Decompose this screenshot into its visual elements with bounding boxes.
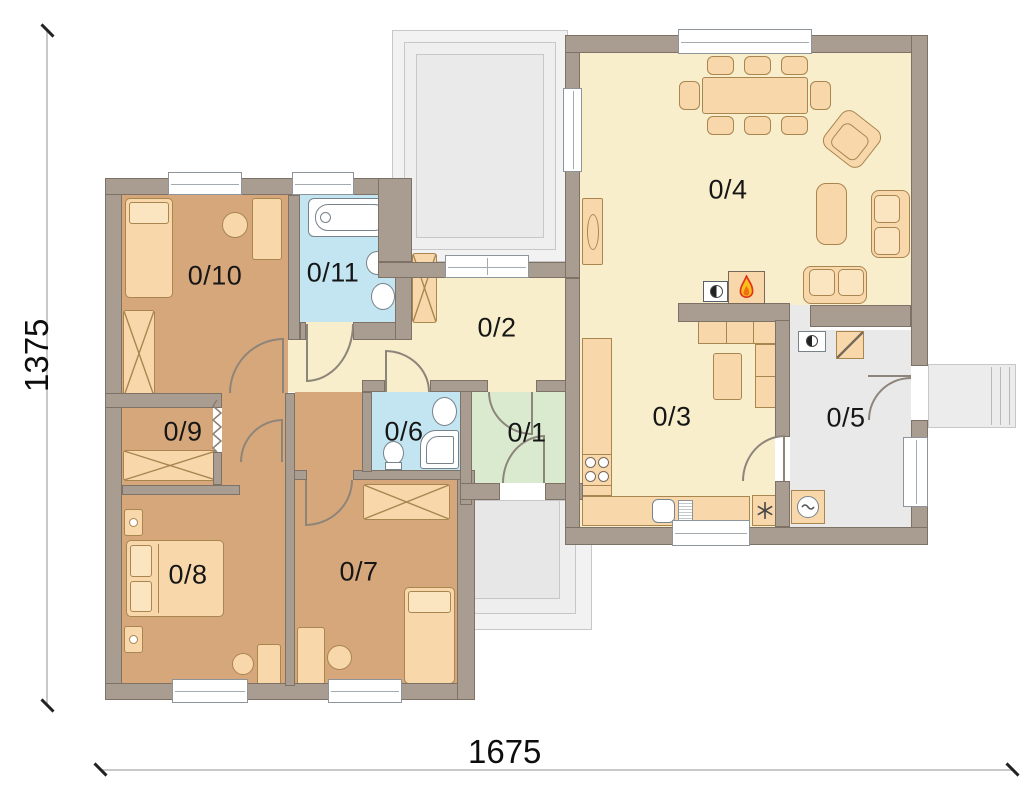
wall [775, 320, 790, 437]
washer-door [797, 496, 819, 518]
room-label-0-3: 0/3 [652, 402, 691, 433]
floor-passage-kitchen [580, 306, 678, 322]
stove-burner [585, 457, 596, 468]
washing-machine [791, 490, 825, 524]
wall [105, 393, 222, 408]
terrace-top-frame [416, 54, 544, 238]
room-label-0-4: 0/4 [708, 175, 747, 206]
wardrobe [363, 484, 450, 520]
wall [678, 303, 790, 322]
pump-dial [806, 335, 818, 347]
dining-chair [781, 56, 808, 75]
cross-wardrobe-icon [364, 485, 449, 519]
dining-chair [744, 56, 771, 75]
dimension-label-width: 1675 [468, 733, 541, 771]
pillow [130, 581, 152, 612]
wardrobe [123, 450, 217, 481]
wall [362, 392, 372, 472]
desk [297, 627, 325, 686]
nightstand-knob [129, 635, 138, 644]
sink-drainer [678, 500, 693, 522]
toilet-tank [385, 462, 402, 470]
wall [911, 35, 928, 366]
bathtub-drain [320, 212, 331, 223]
dining-table [702, 77, 808, 114]
terrace-bottom-frame [472, 500, 560, 599]
corner-bench [698, 320, 780, 344]
flame-icon [738, 275, 755, 301]
room-label-0-8: 0/8 [168, 560, 207, 591]
floor-plan-canvas: 1375 1675 [0, 0, 1024, 799]
sideboard-handle [587, 214, 599, 250]
wall [378, 178, 412, 262]
wall [288, 195, 300, 340]
shower-tray [426, 436, 454, 464]
dimension-line-horizontal [100, 769, 1012, 771]
sofa-cushion [874, 227, 900, 255]
dimension-label-height: 1375 [18, 319, 56, 392]
wall [362, 380, 385, 392]
room-label-0-7: 0/7 [339, 557, 378, 588]
cross-wardrobe-icon [124, 451, 216, 480]
room-label-0-5: 0/5 [826, 403, 865, 434]
window [672, 520, 750, 546]
window [678, 29, 812, 54]
room-label-0-9: 0/9 [163, 417, 202, 448]
porch-step-line [991, 367, 992, 425]
room-label-0-6: 0/6 [384, 417, 423, 448]
room-label-0-2: 0/2 [477, 313, 516, 344]
wall [775, 481, 790, 527]
stool [232, 653, 254, 675]
cross-wardrobe-icon [124, 311, 154, 396]
entrance-opening [911, 366, 928, 420]
window [903, 437, 928, 507]
wall [810, 305, 911, 327]
bench-divider [753, 321, 754, 343]
bathroom-sink [371, 283, 395, 310]
wall [105, 178, 122, 700]
stove-burner [598, 471, 609, 482]
porch-step-line [1000, 367, 1001, 425]
entrance-door-leaf [868, 375, 911, 377]
wardrobe [123, 310, 155, 397]
desk [252, 198, 282, 260]
dining-chair [707, 56, 734, 75]
pillow [408, 591, 451, 613]
dining-chair [744, 116, 771, 135]
bench-divider [726, 321, 727, 343]
bed-divider [158, 544, 159, 613]
desk [257, 644, 281, 687]
room-label-0-1: 0/1 [507, 418, 546, 449]
loveseat-cushion [809, 269, 835, 296]
wave-icon [798, 497, 818, 517]
nightstand-knob [129, 518, 138, 527]
porch-step-line [1009, 367, 1010, 425]
desk-chair [222, 212, 248, 238]
floor-passage-0-5 [790, 305, 810, 330]
snowflake-icon [753, 496, 777, 525]
wall [536, 380, 567, 392]
nook-table [713, 353, 742, 400]
entrance-porch [928, 364, 1016, 428]
water-heater [836, 331, 864, 359]
window [445, 255, 529, 278]
wall [122, 485, 240, 495]
room-label-0-10: 0/10 [188, 261, 243, 292]
window [168, 172, 242, 195]
pillow [129, 202, 169, 224]
fireplace [728, 271, 765, 304]
window [172, 679, 248, 703]
dining-chair [810, 81, 831, 110]
desk-chair [327, 645, 352, 670]
wall [460, 483, 500, 500]
wall [213, 452, 222, 485]
room-label-0-11: 0/11 [307, 258, 360, 289]
folding-door-zigzag [212, 400, 222, 452]
window [563, 88, 582, 172]
sofa-cushion [874, 195, 900, 223]
sideboard [582, 198, 603, 265]
stove-burner [585, 471, 596, 482]
wall [430, 380, 488, 392]
window [328, 679, 402, 703]
stove-burner [598, 457, 609, 468]
pillow [130, 545, 152, 577]
dining-chair [707, 116, 734, 135]
dining-chair [679, 81, 700, 110]
dining-chair [781, 116, 808, 135]
hearth-dial [710, 285, 723, 298]
wall [285, 393, 295, 686]
floor-corridor-mid [295, 392, 362, 480]
loveseat-cushion [838, 269, 864, 296]
bathroom-sink [432, 397, 457, 426]
window [292, 172, 354, 195]
wall [565, 278, 580, 545]
coffee-table [816, 183, 847, 245]
folding-door [212, 400, 222, 452]
